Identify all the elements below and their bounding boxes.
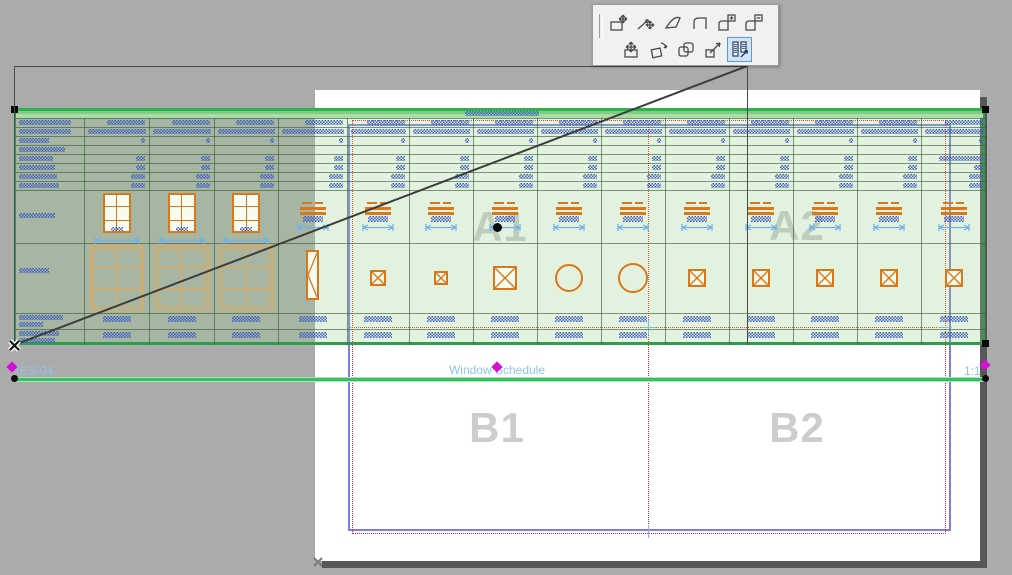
window-pane-line [246,195,247,231]
dimension-line [808,223,842,232]
grid-line-horizontal [16,154,987,155]
greeked-text [329,174,343,179]
greeked-text [19,315,63,320]
greeked-text [141,138,145,143]
grid-line-vertical [214,118,215,345]
greeked-text [652,165,661,170]
greeked-text [908,156,917,161]
greeked-text [913,138,917,143]
greeked-text [103,332,131,338]
greeked-text [524,156,533,161]
greeked-text [849,138,853,143]
sill-symbol-bar [684,212,710,215]
drag-icon [622,40,642,60]
greeked-text [879,120,917,125]
sill-symbol-bar [812,207,838,210]
sill-symbol-dash [763,202,771,204]
greeked-text [131,183,145,188]
greeked-text [683,316,711,322]
mirror-tool-button[interactable] [660,10,685,35]
greeked-text [716,156,725,161]
greeked-text [555,316,583,322]
ghost-rect-right [747,66,748,345]
sill-symbol-bar [941,207,967,210]
grid-line-vertical [857,118,858,345]
add-to-polygon-icon [717,13,737,33]
greeked-text [652,156,661,161]
dimension-line [616,223,650,232]
drag-tool-button[interactable] [619,37,644,62]
sill-symbol-bar [365,212,391,215]
fold-mark [648,525,649,538]
greeked-text [588,156,597,161]
greeked-text [176,227,188,231]
greeked-text [775,174,789,179]
greeked-text [529,138,533,143]
multiply-tool-button[interactable] [673,37,698,62]
greeked-text [593,138,597,143]
window-pane-line [181,249,182,307]
grid-line-horizontal [16,127,987,128]
greeked-text [131,174,145,179]
greeked-text [687,216,707,222]
sill-symbol-dash [558,202,568,204]
greeked-text [401,138,405,143]
grid-line-horizontal [16,172,987,173]
greeked-text [839,174,853,179]
grid-line-vertical [473,118,474,345]
window-pane-line [170,220,194,221]
sill-symbol-bar [492,207,518,210]
window-pane-line [181,195,182,231]
greeked-text [747,316,775,322]
greeked-text [519,174,533,179]
drag-drawing-icon [730,40,750,60]
resize-tool-button[interactable] [700,37,725,62]
grid-line-vertical [347,118,348,345]
sill-symbol-dash [943,202,953,204]
page-corner-marker [312,556,324,568]
grid-line-horizontal [16,145,987,146]
window-plan-x-lines [435,272,447,284]
greeked-text [945,120,983,125]
window-plan-x-lines [881,270,897,286]
greeked-text [733,129,790,134]
greeked-text [797,129,854,134]
selection-handle-bottom-right[interactable] [982,340,989,347]
greeked-text [583,174,597,179]
greeked-text [153,129,211,134]
drag-drawing-tool-button[interactable] [727,37,752,62]
title-hotspot-left[interactable] [6,361,17,372]
window-pane-line [234,206,258,207]
grid-line-horizontal [16,118,987,119]
dimension-line [361,223,395,232]
greeked-text [305,120,343,125]
schedule-title-greeked [465,111,539,116]
greeked-text [299,316,327,322]
greeked-text [240,227,252,231]
greeked-text [88,129,146,134]
greeked-text [619,316,647,322]
window-pane-line [116,195,117,231]
greeked-text [19,138,49,143]
greeked-text [716,165,725,170]
greeked-text [751,216,771,222]
greeked-text [495,216,515,222]
greeked-text [206,138,210,143]
zone-label-b1: B1 [469,404,525,452]
dimension-line [680,223,714,232]
dimension-line [937,223,971,232]
greeked-text [232,316,260,322]
greeked-text [265,165,274,170]
move-node-tool-button[interactable] [606,10,631,35]
sill-symbol-dash [571,202,579,204]
sill-symbol-bar [941,212,967,215]
subtract-from-polygon-icon [744,13,764,33]
greeked-text [944,216,964,222]
greeked-text [334,165,343,170]
sill-symbol-dash [443,202,451,204]
greeked-text [844,156,853,161]
greeked-text [431,120,469,125]
title-handle-right[interactable] [982,375,989,382]
sill-symbol-dash [367,202,377,204]
greeked-text [19,120,71,125]
greeked-text [282,129,344,134]
grid-line-vertical [793,118,794,345]
sill-symbol-bar [620,212,646,215]
sill-symbol-dash [750,202,760,204]
window-pane-line [94,289,140,290]
dimension-line [552,223,586,232]
sill-symbol-dash [315,202,323,204]
add-to-polygon-tool-button[interactable] [714,10,739,35]
greeked-text [455,183,469,188]
offset-edge-tool-button[interactable] [687,10,712,35]
window-plan-x-lines [946,270,962,286]
grid-line-vertical [665,118,666,345]
window-pane-line [105,220,129,221]
grid-line-vertical [537,118,538,345]
greeked-text [103,316,131,322]
greeked-text [491,316,519,322]
greeked-text [979,138,983,143]
grid-line-horizontal [16,190,987,191]
sill-symbol-dash [956,202,964,204]
greeked-text [940,332,968,338]
greeked-text [136,156,145,161]
window-pane-line [94,267,140,268]
greeked-text [465,138,469,143]
greeked-text [555,332,583,338]
greeked-text [588,165,597,170]
greeked-text [367,120,405,125]
title-handle-left[interactable] [11,375,18,382]
drawing-scale-label: 1:1 [964,364,981,378]
greeked-text [107,120,145,125]
greeked-text [19,322,43,327]
greeked-text [19,174,57,179]
grid-line-horizontal [16,329,987,330]
greeked-text [172,120,210,125]
greeked-text [396,156,405,161]
greeked-text [925,129,984,134]
stretch-node-tool-button[interactable] [633,10,658,35]
greeked-text [875,332,903,338]
drawing-id-label: ES-04 [20,364,53,378]
greeked-text [431,216,451,222]
sill-symbol-bar [812,212,838,215]
grid-line-vertical [729,118,730,345]
window-pane-line [234,220,258,221]
move-node-icon [609,13,629,33]
greeked-text [477,129,534,134]
greeked-text [391,183,405,188]
greeked-text [427,316,455,322]
sill-symbol-dash [430,202,440,204]
selection-handle-top-right[interactable] [982,106,989,113]
greeked-text [136,165,145,170]
window-plan-x-lines [689,270,705,286]
greeked-text [460,156,469,161]
greeked-text [815,120,853,125]
greeked-text [351,129,406,134]
greeked-text [19,183,59,188]
sill-symbol-bar [300,207,326,210]
offset-edge-icon [690,13,710,33]
greeked-text [303,216,323,222]
window-pane-line [105,206,129,207]
layout-workspace: A1 A2 B1 B2 ES-04 Window Schedule 1:1 [0,0,1012,575]
greeked-text [495,120,533,125]
greeked-text [811,316,839,322]
sill-symbol-dash [814,202,824,204]
dimension-line [93,236,141,245]
grid-line-horizontal [16,181,987,182]
greeked-text [196,183,210,188]
greeked-text [19,129,71,134]
drag-anchor-marker [7,338,22,353]
subtract-from-polygon-tool-button[interactable] [741,10,766,35]
greeked-text [815,216,835,222]
ghost-rect-left [14,66,15,345]
rotate-tool-button[interactable] [646,37,671,62]
mirror-icon [663,13,683,33]
grid-line-vertical [601,118,602,345]
greeked-text [619,332,647,338]
sill-symbol-bar [556,212,582,215]
greeked-text [721,138,725,143]
greeked-text [201,156,210,161]
greeked-text [236,120,274,125]
sill-symbol-dash [622,202,632,204]
sill-symbol-bar [876,212,902,215]
greeked-text [427,332,455,338]
dimension-line [158,236,206,245]
window-pane-line [223,267,269,268]
sill-symbol-bar [556,207,582,210]
sill-symbol-dash [699,202,707,204]
greeked-text [232,332,260,338]
rotate-icon [649,40,669,60]
sill-symbol-bar [748,212,774,215]
greeked-text [939,156,983,161]
greeked-text [861,129,918,134]
sill-symbol-bar [492,212,518,215]
sill-symbol-dash [494,202,504,204]
title-hotspot-right[interactable] [979,359,990,370]
greeked-text [647,183,661,188]
window-plan-x-lines [753,270,769,286]
greeked-text [396,165,405,170]
greeked-text [391,174,405,179]
multiply-icon [676,40,696,60]
greeked-text [334,156,343,161]
greeked-text [270,138,274,143]
drawing-title-line[interactable] [14,378,985,381]
greeked-text [623,120,661,125]
greeked-text [683,332,711,338]
stretch-node-icon [636,13,656,33]
selection-handle-center[interactable] [493,223,502,232]
sill-symbol-dash [686,202,696,204]
window-pane-line [170,206,194,207]
greeked-text [974,165,983,170]
grid-line-horizontal [16,313,987,314]
greeked-text [623,216,643,222]
greeked-text [879,216,899,222]
sill-symbol-bar [428,207,454,210]
sill-symbol-dash [891,202,899,204]
grid-line-horizontal [16,136,987,137]
greeked-text [669,129,726,134]
pet-palette[interactable] [592,4,779,66]
greeked-text [747,332,775,338]
greeked-text [19,268,49,273]
sill-symbol-dash [635,202,643,204]
greeked-text [299,332,327,338]
sill-symbol-bar [620,207,646,210]
sill-symbol-bar [300,212,326,215]
window-pane-line [159,267,205,268]
grid-line-vertical [84,118,85,345]
greeked-text [839,183,853,188]
dimension-line [222,236,270,245]
greeked-text [460,165,469,170]
greeked-text [785,138,789,143]
greeked-text [940,316,968,322]
greeked-text [519,183,533,188]
greeked-text [908,165,917,170]
greeked-text [265,156,274,161]
greeked-text [559,216,579,222]
greeked-text [647,174,661,179]
dimension-line [872,223,906,232]
window-swing-line [307,251,318,299]
window-plan-x-lines [817,270,833,286]
greeked-text [844,165,853,170]
greeked-text [751,120,789,125]
greeked-text [19,147,65,152]
greeked-text [413,129,470,134]
zone-label-b2: B2 [769,404,825,452]
greeked-text [19,213,55,218]
greeked-text [780,165,789,170]
greeked-text [364,316,392,322]
window-pane-line [159,289,205,290]
window-plan-circle-symbol [618,263,648,293]
greeked-text [811,332,839,338]
grid-line-vertical [149,118,150,345]
greeked-text [605,129,662,134]
window-plan-x-lines [371,271,385,285]
greeked-text [218,129,275,134]
dimension-line [424,223,458,232]
greeked-text [168,332,196,338]
greeked-text [201,165,210,170]
greeked-text [711,183,725,188]
grid-line-vertical [278,118,279,345]
greeked-text [687,120,725,125]
greeked-text [969,174,983,179]
window-plan-circle-symbol [555,264,583,292]
greeked-text [491,332,519,338]
greeked-text [711,174,725,179]
greeked-text [168,316,196,322]
sill-symbol-dash [302,202,312,204]
window-pane-line [223,289,269,290]
greeked-text [583,183,597,188]
grid-line-horizontal [16,163,987,164]
ghost-rect-top [14,66,747,67]
sill-symbol-bar [876,207,902,210]
greeked-text [903,174,917,179]
greeked-text [260,183,274,188]
dimension-line [744,223,778,232]
sill-symbol-dash [507,202,515,204]
window-pane-line [116,249,117,307]
palette-grip[interactable] [599,14,603,38]
grid-line-vertical [921,118,922,345]
greeked-text [196,174,210,179]
greeked-text [368,216,388,222]
sill-symbol-dash [827,202,835,204]
sill-symbol-bar [684,207,710,210]
greeked-text [875,316,903,322]
sill-symbol-bar [428,212,454,215]
sill-symbol-dash [878,202,888,204]
greeked-text [524,165,533,170]
greeked-text [19,156,53,161]
greeked-text [339,138,343,143]
grid-line-vertical [409,118,410,345]
greeked-text [969,183,983,188]
greeked-text [260,174,274,179]
greeked-text [780,156,789,161]
window-plan-x-lines [494,267,516,289]
greeked-text [657,138,661,143]
greeked-text [111,227,123,231]
greeked-text [903,183,917,188]
sill-symbol-bar [748,207,774,210]
greeked-text [775,183,789,188]
greeked-text [329,183,343,188]
greeked-text [364,332,392,338]
resize-icon [703,40,723,60]
greeked-text [19,165,55,170]
